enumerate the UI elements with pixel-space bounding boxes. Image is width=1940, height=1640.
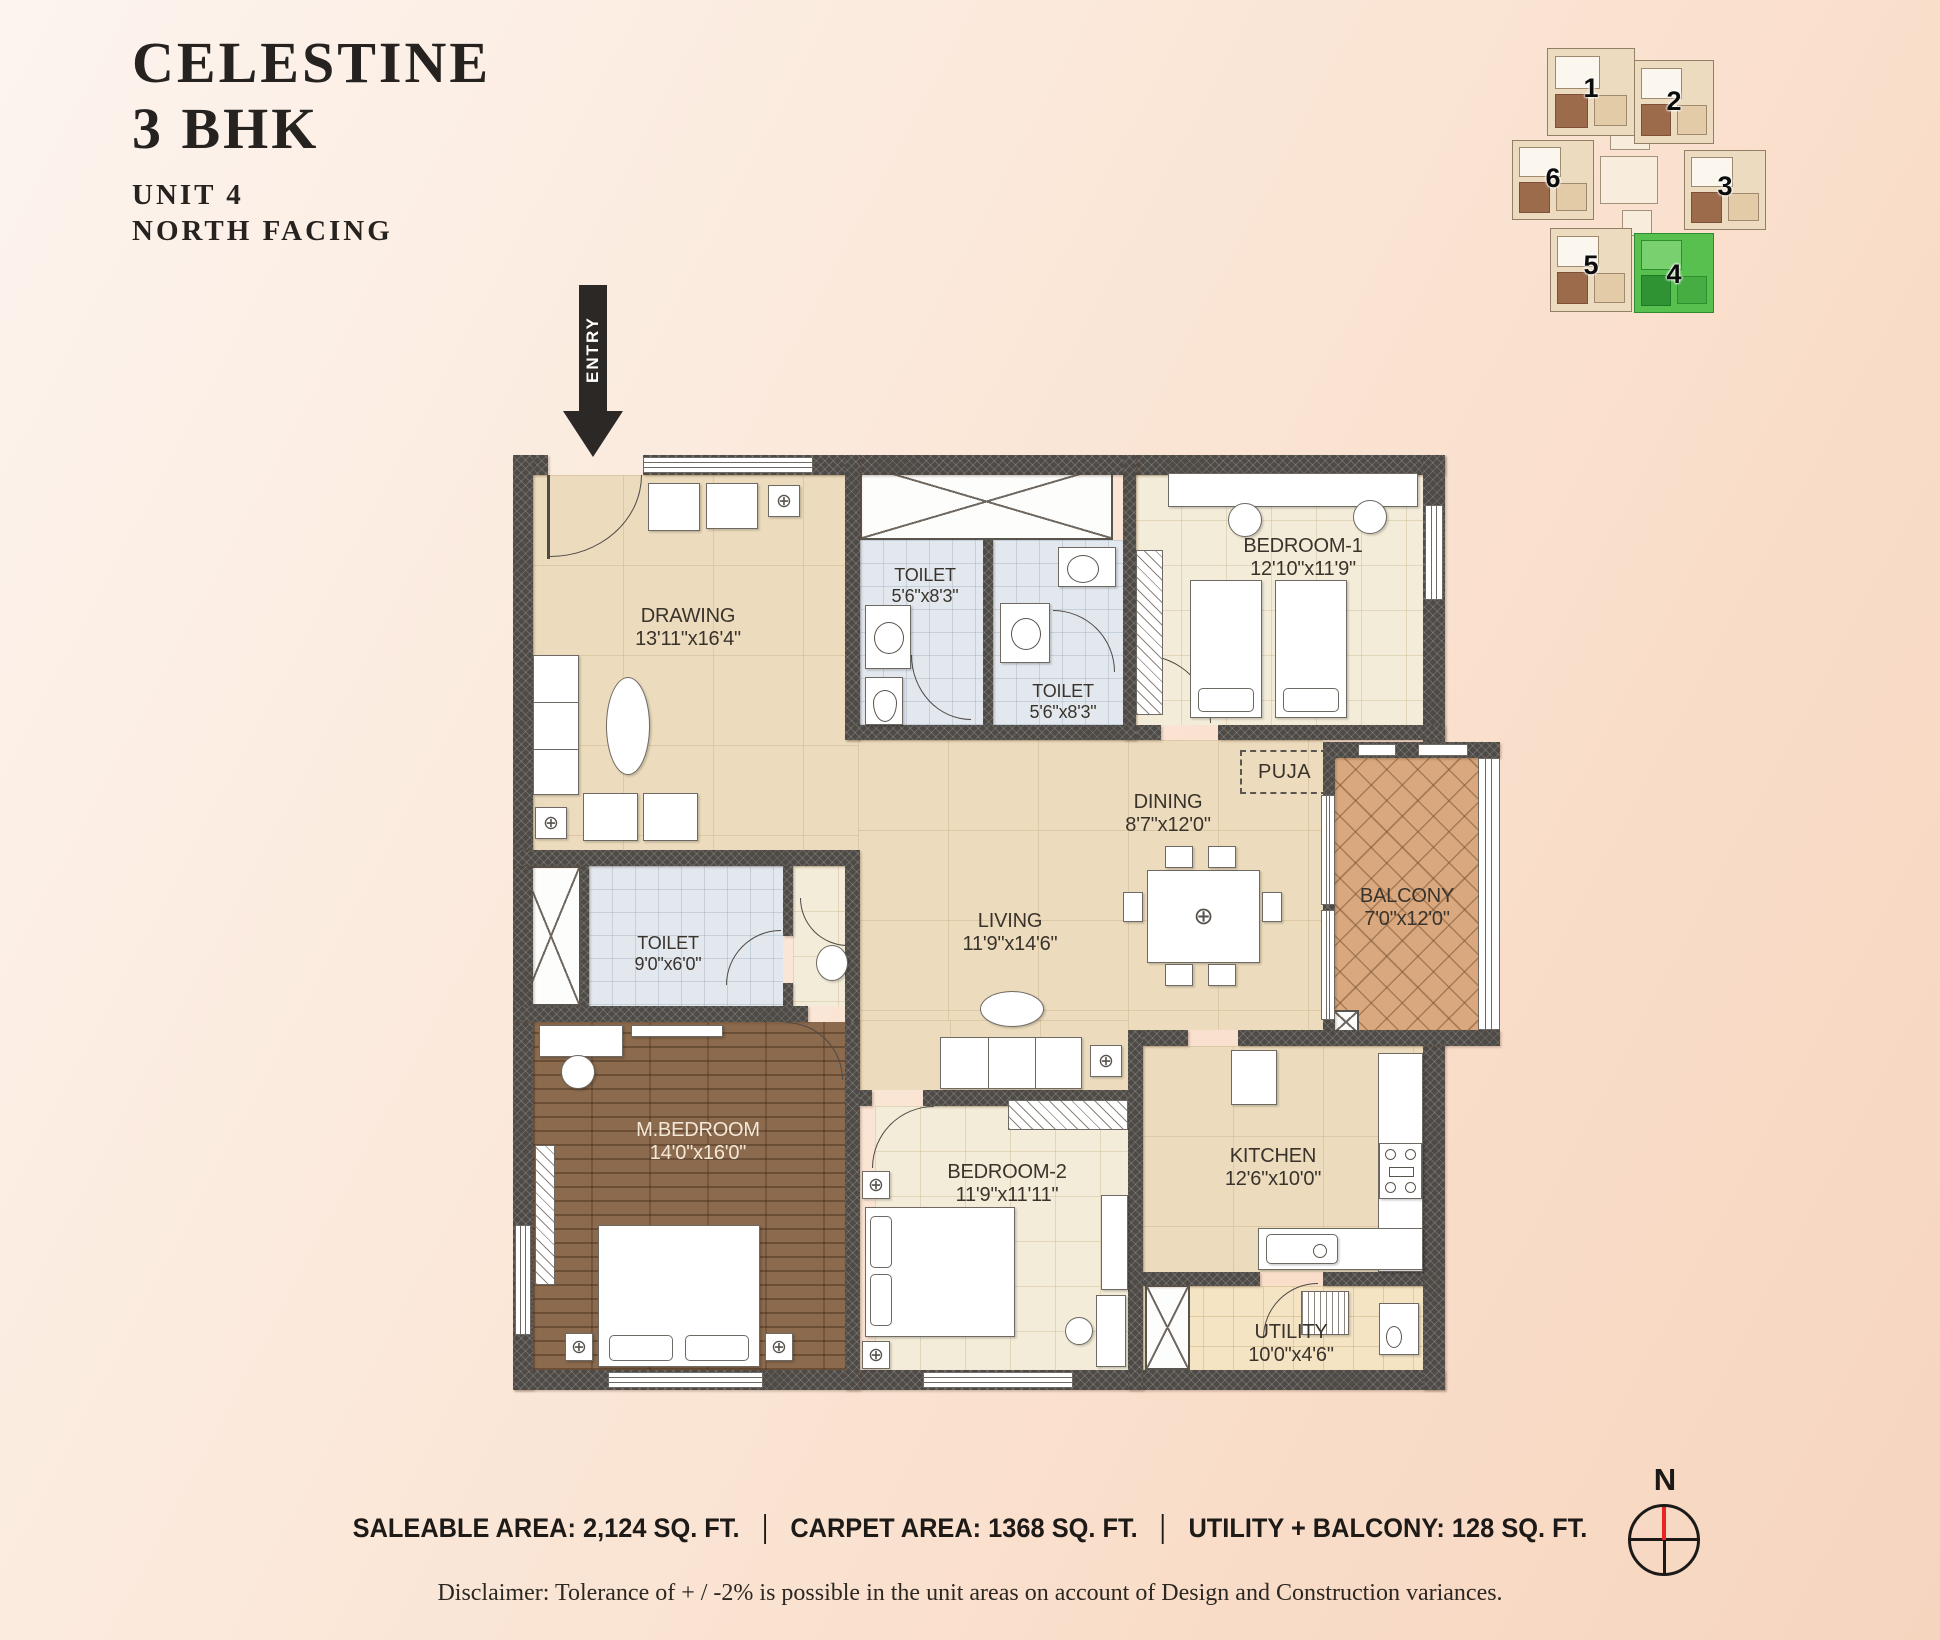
balcony-sliding-door — [1321, 910, 1335, 1020]
window — [608, 1372, 763, 1388]
wall-segment — [1136, 725, 1161, 740]
wardrobe — [535, 1145, 555, 1285]
compass-needle-north — [1662, 1507, 1666, 1540]
room-name: TOILET — [1030, 681, 1097, 702]
dining-chair — [1165, 846, 1193, 868]
room-label-utility: UTILITY 10'0"x4'6" — [1248, 1321, 1333, 1367]
room-label-kitchen: KITCHEN 12'6"x10'0" — [1225, 1145, 1321, 1191]
dressing-table — [539, 1025, 623, 1057]
oval-table — [980, 991, 1044, 1027]
wall-segment — [845, 1022, 860, 1390]
wall-segment — [1323, 742, 1500, 758]
wall-segment — [1423, 1030, 1445, 1390]
keyplan-unit-6: 6 — [1512, 140, 1594, 220]
wall-segment — [1143, 1272, 1260, 1286]
carpet-area: CARPET AREA: 1368 SQ. FT. — [790, 1513, 1137, 1543]
dining-chair — [1208, 846, 1236, 868]
wall-segment — [783, 866, 793, 936]
room-dims: 11'9"x11'11" — [947, 1184, 1066, 1207]
wall-segment — [513, 1006, 808, 1022]
armchair — [643, 793, 698, 841]
stool — [1065, 1317, 1093, 1345]
duct-shaft — [1145, 1285, 1190, 1370]
room-dims: 5'6"x8'3" — [892, 586, 959, 607]
entry-arrow: ENTRY — [579, 285, 607, 413]
room-label-toilet-a: TOILET 5'6"x8'3" — [892, 565, 959, 607]
study-desk — [1168, 473, 1418, 507]
balcony-railing — [1478, 758, 1500, 1030]
crosshair-icon: ⊕ — [571, 1338, 587, 1357]
room-dims: 8'7"x12'0" — [1125, 814, 1210, 837]
divider — [1162, 1514, 1164, 1544]
project-name-line1: CELESTINE — [132, 30, 491, 96]
crosshair-icon: ⊕ — [776, 492, 792, 511]
puja-label: PUJA — [1258, 761, 1311, 784]
north-compass: N — [1595, 1462, 1735, 1622]
keyplan-unit-3: 3 — [1684, 150, 1766, 230]
crosshair-icon: ⊕ — [543, 814, 559, 833]
room-dims: 14'0"x16'0" — [636, 1142, 760, 1165]
room-name: M.BEDROOM — [636, 1119, 760, 1142]
geyser — [1379, 1303, 1419, 1355]
crosshair-icon: ⊕ — [1193, 905, 1213, 929]
washbasin-counter — [1000, 603, 1050, 663]
clothes-rail — [1008, 1100, 1128, 1130]
window — [643, 457, 813, 473]
desk-chair — [1228, 503, 1262, 537]
dining-chair — [1262, 892, 1282, 922]
room-name: BEDROOM-2 — [947, 1161, 1066, 1184]
unit-number: UNIT 4 — [132, 178, 491, 212]
room-dims: 12'6"x10'0" — [1225, 1168, 1321, 1191]
room-label-bedroom2: BEDROOM-2 11'9"x11'11" — [947, 1161, 1066, 1207]
wardrobe — [1101, 1195, 1128, 1290]
wall-segment — [581, 866, 589, 1006]
facing-direction: NORTH FACING — [132, 214, 491, 248]
window — [1425, 505, 1443, 600]
room-name: DINING — [1125, 791, 1210, 814]
room-dims: 9'0"x6'0" — [635, 954, 702, 975]
keyplan-unit-2: 2 — [1634, 60, 1714, 144]
armchair — [648, 483, 700, 531]
wall-segment — [983, 540, 993, 725]
wall-segment — [860, 1090, 872, 1106]
armchair — [583, 793, 638, 841]
compass-north-label: N — [1595, 1462, 1735, 1498]
puja-room: PUJA — [1240, 750, 1327, 794]
wall-segment — [513, 850, 860, 866]
room-label-master-bedroom: M.BEDROOM 14'0"x16'0" — [636, 1119, 760, 1165]
saleable-area: SALEABLE AREA: 2,124 SQ. FT. — [353, 1513, 740, 1543]
room-label-living: LIVING 11'9"x14'6" — [963, 910, 1058, 956]
room-dims: 10'0"x4'6" — [1248, 1344, 1333, 1367]
wall-segment — [1128, 1030, 1143, 1390]
dresser — [1096, 1295, 1126, 1367]
corner-table-icon: ⊕ — [768, 485, 800, 517]
nightstand-icon: ⊕ — [862, 1171, 890, 1199]
nightstand-icon: ⊕ — [765, 1333, 793, 1361]
compass-axis-vertical — [1663, 1540, 1666, 1573]
room-name: BALCONY — [1360, 885, 1454, 908]
crosshair-icon: ⊕ — [868, 1346, 884, 1365]
floor-plan-page: CELESTINE 3 BHK UNIT 4 NORTH FACING 1 2 … — [0, 0, 1940, 1640]
keyplan-unit-1: 1 — [1547, 48, 1635, 136]
window — [923, 1372, 1073, 1388]
balcony-sliding-door — [1321, 795, 1335, 905]
crosshair-icon: ⊕ — [868, 1176, 884, 1195]
room-label-bedroom1: BEDROOM-1 12'10"x11'9" — [1243, 535, 1362, 581]
project-name-line2: 3 BHK — [132, 96, 491, 162]
wall-segment — [1238, 1030, 1500, 1046]
double-bed — [598, 1225, 760, 1367]
oval-table — [606, 677, 650, 775]
sofa — [940, 1037, 1082, 1089]
unit-floor-plan: ENTRY — [513, 455, 1500, 1390]
room-name: TOILET — [892, 565, 959, 586]
room-label-drawing: DRAWING 13'11"x16'4" — [635, 605, 741, 651]
room-name: UTILITY — [1248, 1321, 1333, 1344]
desk-chair — [1353, 500, 1387, 534]
side-table-icon: ⊕ — [1090, 1045, 1122, 1077]
double-bed — [865, 1207, 1015, 1337]
dining-chair — [1123, 892, 1143, 922]
room-dims: 12'10"x11'9" — [1243, 558, 1362, 581]
keyplan-unit-5: 5 — [1550, 228, 1632, 312]
wall-segment — [845, 455, 860, 740]
keyplan-unit-3-label: 3 — [1685, 171, 1765, 202]
title-block: CELESTINE 3 BHK UNIT 4 NORTH FACING — [132, 30, 491, 248]
keyplan-unit-2-label: 2 — [1635, 86, 1713, 117]
dining-chair — [1208, 964, 1236, 986]
wardrobe — [1136, 550, 1163, 715]
entry-arrow-head — [563, 411, 623, 457]
kitchen-sink — [1266, 1234, 1338, 1264]
wall-segment — [1218, 725, 1445, 740]
wall-segment — [1323, 1272, 1423, 1286]
room-label-toilet-b: TOILET 5'6"x8'3" — [1030, 681, 1097, 723]
crosshair-icon: ⊕ — [1098, 1052, 1114, 1071]
tv-console — [631, 1025, 723, 1037]
single-bed — [1275, 580, 1347, 718]
keyplan-unit-6-label: 6 — [1513, 163, 1593, 194]
room-name: LIVING — [963, 910, 1058, 933]
keyplan-unit-4-highlighted: 4 — [1634, 233, 1714, 313]
entry-label: ENTRY — [583, 316, 603, 383]
sofa — [533, 655, 579, 795]
wall-segment — [783, 983, 793, 1006]
room-label-toilet-c: TOILET 9'0"x6'0" — [635, 933, 702, 975]
washbasin — [816, 945, 848, 981]
keyplan-unit-5-label: 5 — [1551, 250, 1631, 281]
stove — [1379, 1143, 1422, 1199]
room-name: DRAWING — [635, 605, 741, 628]
single-bed — [1190, 580, 1262, 718]
stool — [561, 1055, 595, 1089]
refrigerator — [1231, 1050, 1277, 1105]
keyplan-unit-1-label: 1 — [1548, 73, 1634, 104]
room-dims: 13'11"x16'4" — [635, 628, 741, 651]
room-label-balcony: BALCONY 7'0"x12'0" — [1360, 885, 1454, 931]
washbasin-counter — [865, 605, 911, 669]
keyplan-lobby — [1600, 156, 1658, 204]
dining-table: ⊕ — [1147, 870, 1260, 963]
dining-chair — [1165, 964, 1193, 986]
room-name: BEDROOM-1 — [1243, 535, 1362, 558]
room-dims: 11'9"x14'6" — [963, 933, 1058, 956]
keyplan-unit-4-label: 4 — [1635, 259, 1713, 290]
wall-segment — [1143, 1030, 1188, 1046]
crosshair-icon: ⊕ — [771, 1338, 787, 1357]
room-label-dining: DINING 8'7"x12'0" — [1125, 791, 1210, 837]
wall-segment — [1123, 455, 1136, 740]
utility-balcony-area: UTILITY + BALCONY: 128 SQ. FT. — [1188, 1513, 1587, 1543]
armchair — [706, 483, 758, 529]
toilet-wc — [865, 677, 903, 725]
window — [515, 1225, 531, 1335]
toilet-wc — [1058, 547, 1116, 587]
room-name: KITCHEN — [1225, 1145, 1321, 1168]
key-plan: 1 2 6 3 5 4 — [1512, 28, 1940, 328]
window-sill — [1418, 744, 1468, 756]
nightstand-icon: ⊕ — [862, 1341, 890, 1369]
divider — [764, 1514, 766, 1544]
corner-table-icon: ⊕ — [535, 807, 567, 839]
room-dims: 7'0"x12'0" — [1360, 908, 1454, 931]
room-name: TOILET — [635, 933, 702, 954]
wall-segment — [845, 725, 1136, 740]
window-sill — [1358, 744, 1396, 756]
room-dims: 5'6"x8'3" — [1030, 702, 1097, 723]
entry-door-leaf — [547, 475, 550, 559]
nightstand-icon: ⊕ — [565, 1333, 593, 1361]
